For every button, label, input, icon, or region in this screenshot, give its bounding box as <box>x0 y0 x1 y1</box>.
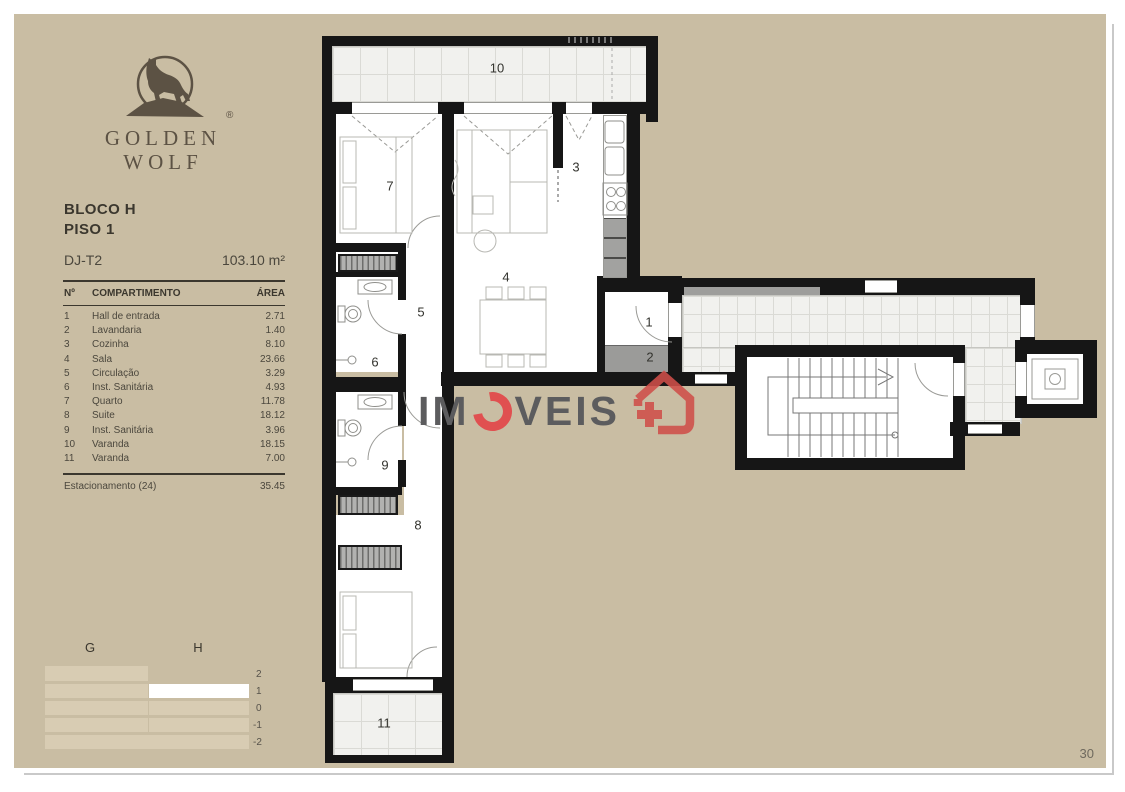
table-row: 8Suite18.12 <box>64 409 285 423</box>
suite-balcony-opening <box>353 679 433 691</box>
document-canvas: ® GOLDEN WOLF BLOCO H PISO 1 DJ-T2 103.1… <box>0 0 1125 792</box>
room-label-varanda-10: 10 <box>490 61 504 76</box>
table-row: 3Cozinha8.10 <box>64 338 285 352</box>
page-shadow <box>24 773 1114 775</box>
kitchen-door-opening <box>566 102 592 114</box>
wardrobe <box>338 495 398 515</box>
brand-name-line1: GOLDEN <box>73 126 253 151</box>
divider <box>63 305 285 306</box>
section-bar-g2 <box>45 666 148 681</box>
window-opening <box>968 424 1002 434</box>
table-row: 11Varanda7.00 <box>64 452 285 466</box>
wall <box>322 102 336 682</box>
level-label: -1 <box>253 720 262 731</box>
rock-mound-shape <box>126 98 204 117</box>
watermark-o-swirl-icon <box>465 384 519 438</box>
level-label: 0 <box>256 703 262 714</box>
room-label-hall-1: 1 <box>645 315 652 330</box>
watermark-text-suffix: VEIS <box>515 388 620 435</box>
wall <box>553 114 563 168</box>
room-label-suite-8: 8 <box>414 518 421 533</box>
room-label-sala-4: 4 <box>502 270 509 285</box>
block-h-label: H <box>193 640 202 655</box>
bathroom-9-area <box>336 392 402 487</box>
block-floor-heading: BLOCO H PISO 1 <box>64 200 136 240</box>
table-header: Nº COMPARTIMENTO ÁREA <box>64 288 285 299</box>
wall <box>398 460 406 487</box>
room-label-cozinha-3: 3 <box>572 160 579 175</box>
section-bar-basement <box>45 735 249 749</box>
table-row: 6Inst. Sanitária4.93 <box>64 381 285 395</box>
common-corridor-tiles <box>682 295 1022 349</box>
divider <box>63 280 285 282</box>
table-row: 10Varanda18.15 <box>64 438 285 452</box>
wall <box>336 487 402 495</box>
wolf-logo-icon <box>118 46 210 122</box>
hall-1-area <box>605 292 668 345</box>
col-name: COMPARTIMENTO <box>92 288 241 299</box>
section-bar-g-1 <box>45 718 148 732</box>
table-row: 7Quarto11.78 <box>64 395 285 409</box>
table-row: 1Hall de entrada2.71 <box>64 310 285 324</box>
level-label: 1 <box>256 686 262 697</box>
section-bar-g1 <box>45 684 148 698</box>
block-label: BLOCO H <box>64 200 136 220</box>
elevator-door-opening <box>1015 362 1027 396</box>
parking-label: Estacionamento (24) <box>64 481 156 492</box>
unit-total-area: 103.10 m² <box>222 252 285 268</box>
table-row: 9Inst. Sanitária3.96 <box>64 424 285 438</box>
table-row: 4Sala23.66 <box>64 353 285 367</box>
kitchen-counter <box>603 115 627 278</box>
common-corridor-tiles <box>965 347 1022 424</box>
unit-type: DJ-T2 <box>64 252 102 268</box>
section-bar-h-1 <box>149 718 249 732</box>
room-label-lavandaria-2: 2 <box>646 350 653 365</box>
stair-door-opening <box>953 363 965 396</box>
wall <box>325 755 454 763</box>
laundry-2-area <box>605 345 668 372</box>
section-bar-g0 <box>45 701 148 715</box>
col-no: Nº <box>64 288 92 299</box>
wall <box>336 243 406 252</box>
col-area: ÁREA <box>241 288 285 299</box>
level-label: 2 <box>256 669 262 680</box>
stairwell-interior <box>747 357 953 458</box>
room-label-is-6: 6 <box>371 355 378 370</box>
wall <box>627 114 640 278</box>
room-label-is-9: 9 <box>381 458 388 473</box>
wall <box>646 36 658 122</box>
wall <box>597 276 682 292</box>
section-bar-h0 <box>149 701 249 715</box>
wardrobe <box>338 254 398 272</box>
room-label-varanda-11: 11 <box>377 716 391 731</box>
imoveis-watermark: IM VEIS <box>418 383 696 439</box>
suite-8-area <box>336 515 442 677</box>
wall <box>336 272 402 277</box>
floor-label: PISO 1 <box>64 220 136 240</box>
wall <box>336 377 402 392</box>
window-opening <box>865 280 897 293</box>
elevator-interior <box>1027 354 1083 404</box>
watermark-text-prefix: IM <box>418 388 470 435</box>
wardrobe <box>338 545 402 570</box>
unit-row: DJ-T2 103.10 m² <box>64 252 285 268</box>
table-row: 2Lavandaria1.40 <box>64 324 285 338</box>
window-opening <box>1020 305 1035 337</box>
block-g-label: G <box>85 640 95 655</box>
wall <box>1083 340 1097 418</box>
page-shadow <box>1112 24 1114 774</box>
entrance-door-opening <box>668 303 682 337</box>
table-row: 5Circulação3.29 <box>64 367 285 381</box>
divider <box>63 473 285 475</box>
wall <box>597 285 605 380</box>
section-bar-h1-highlighted <box>149 684 249 698</box>
room-label-quarto-7: 7 <box>386 179 393 194</box>
balcony-door-opening <box>464 102 552 114</box>
room-label-circulacao-5: 5 <box>417 305 424 320</box>
corridor-railing <box>684 287 820 295</box>
parking-area: 35.45 <box>260 481 285 492</box>
page-number: 30 <box>1070 746 1094 761</box>
brand-name-line2: WOLF <box>73 150 253 175</box>
balcony-railing <box>568 37 612 43</box>
balcony-door-opening <box>352 102 438 114</box>
parking-row: Estacionamento (24) 35.45 <box>64 481 285 492</box>
registered-mark: ® <box>226 110 233 121</box>
level-label: -2 <box>253 737 262 748</box>
compartments-table: 1Hall de entrada2.71 2Lavandaria1.40 3Co… <box>64 310 285 466</box>
house-plus-icon <box>632 369 696 439</box>
window-opening <box>695 374 727 384</box>
